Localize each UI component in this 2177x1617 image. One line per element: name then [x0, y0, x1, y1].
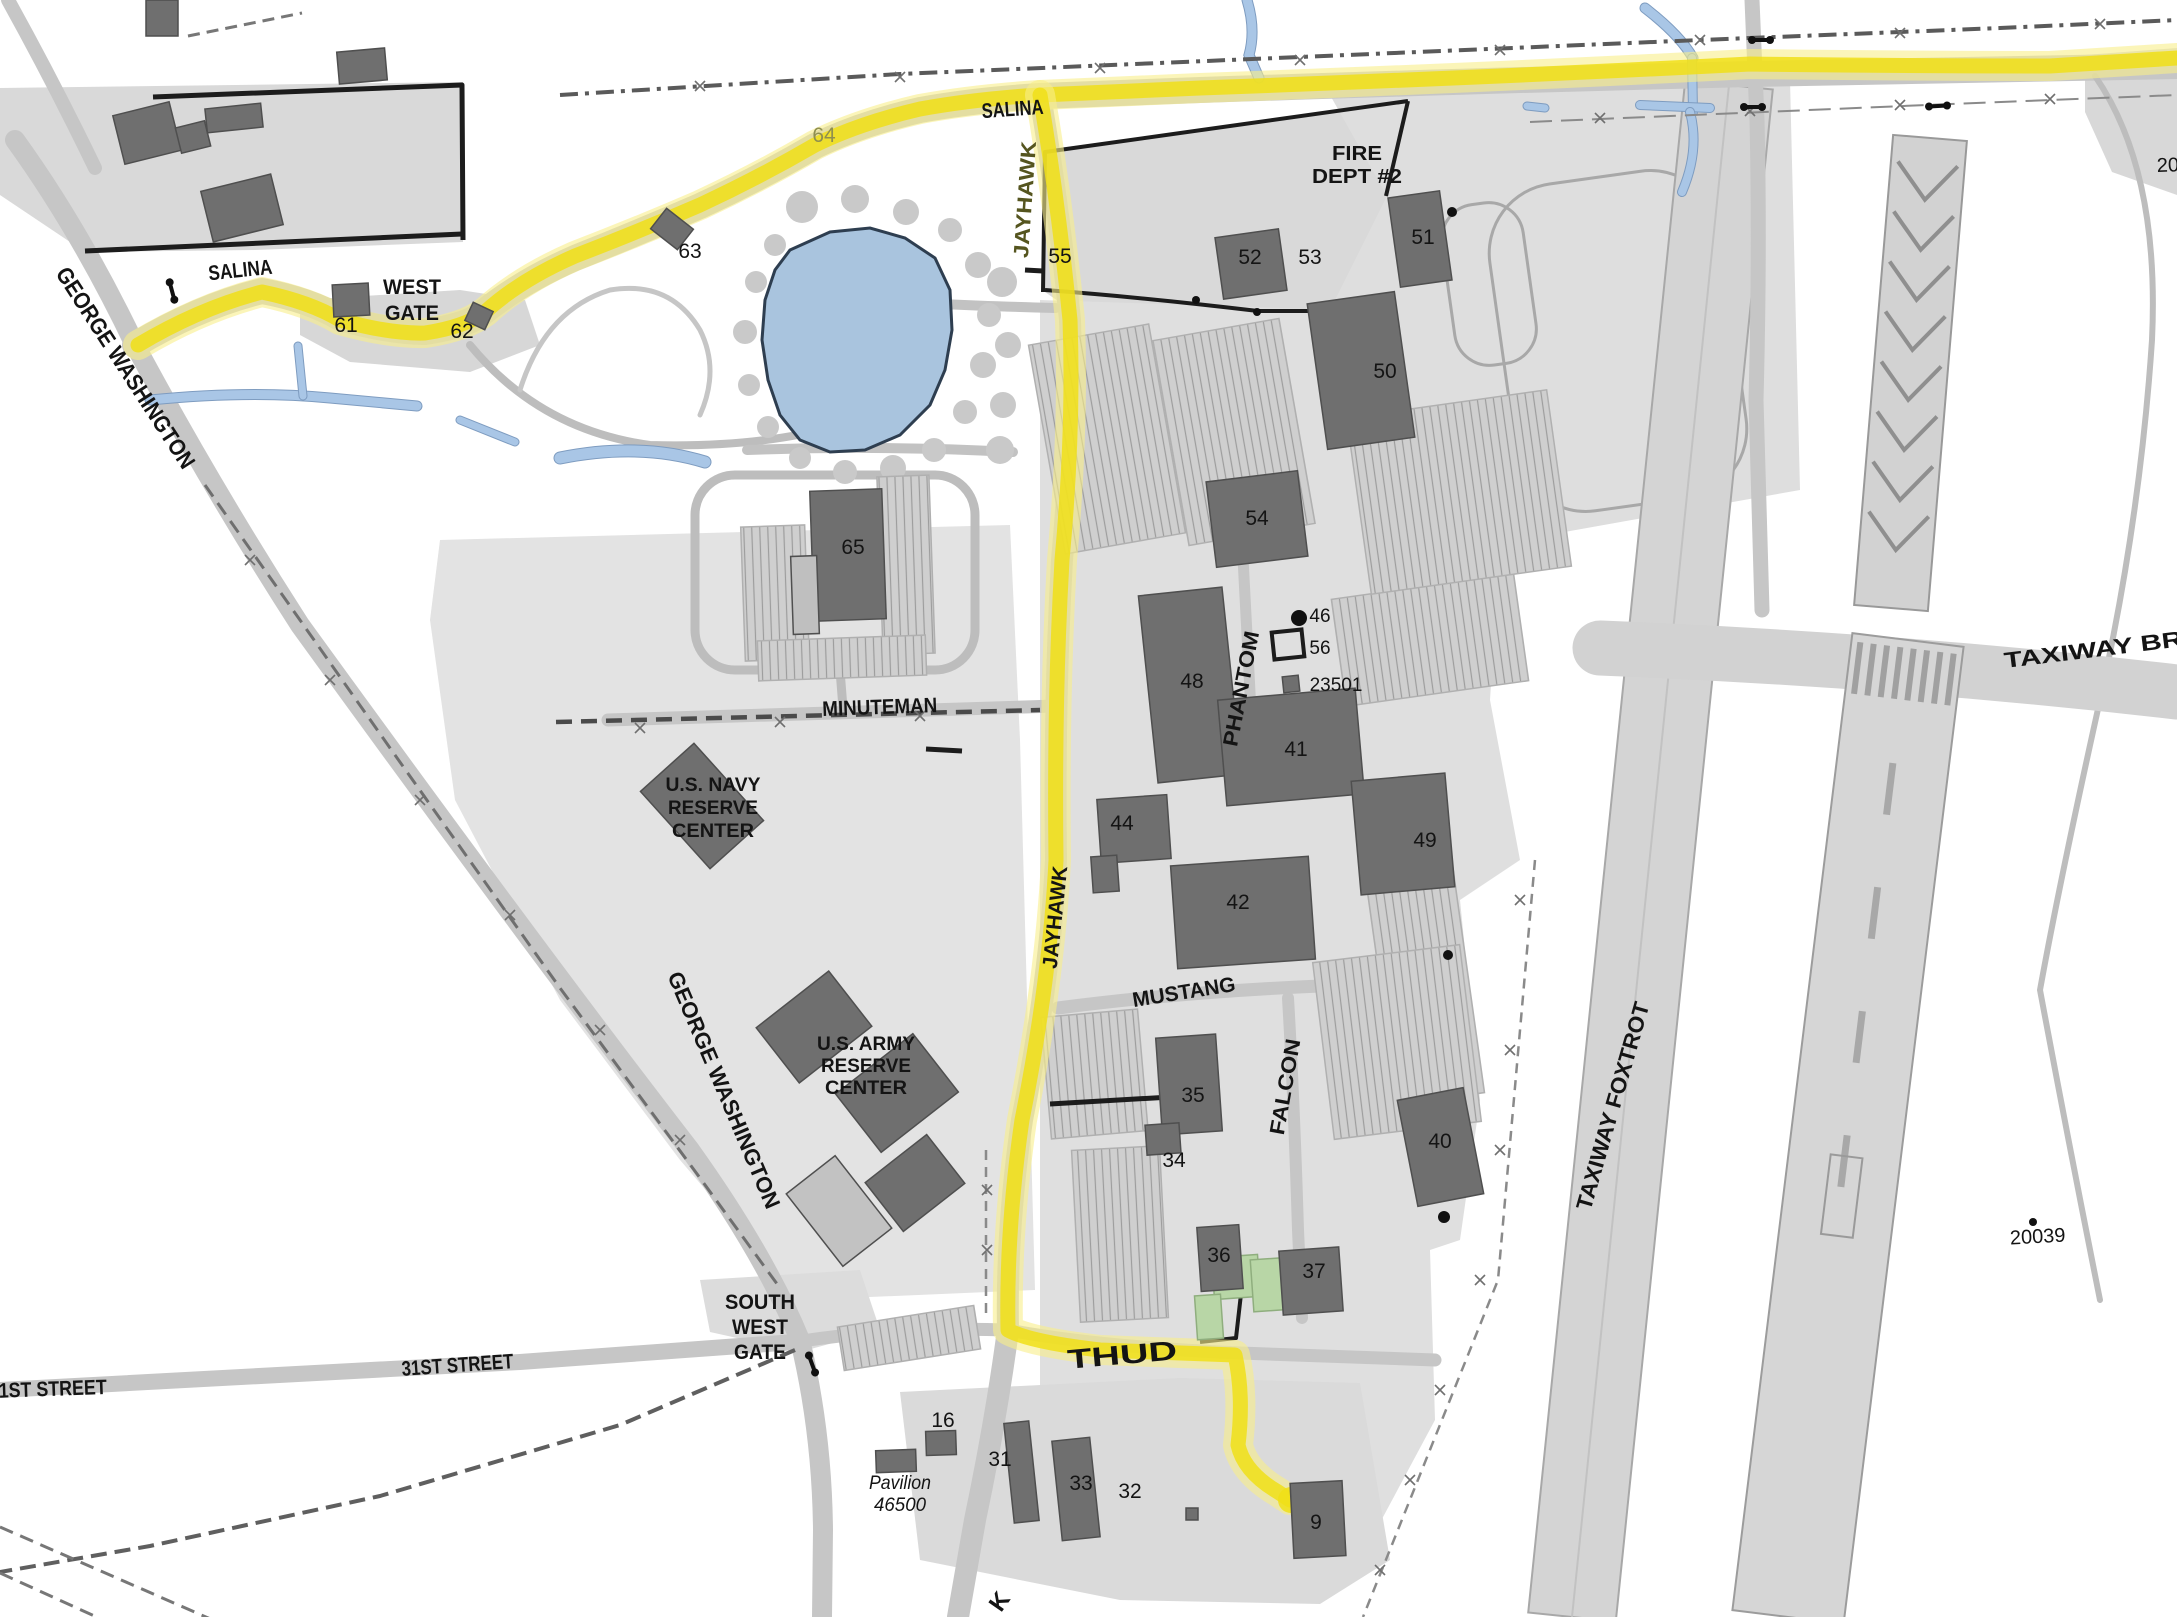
- bldg-55-label: 55: [1048, 245, 1071, 268]
- fire-dept-label-2: DEPT #2: [1312, 166, 1402, 188]
- bldg-pavilion: [876, 1449, 917, 1472]
- point-marker: [1447, 207, 1457, 217]
- point-marker: [1291, 610, 1307, 626]
- bldg-63-label: 63: [678, 240, 701, 263]
- bldg-44: [1097, 795, 1171, 864]
- point-marker: [1192, 296, 1200, 304]
- south-west-gate-label-3: GATE: [734, 1341, 786, 1364]
- west-gate-label-2: GATE: [385, 302, 439, 325]
- point-marker: [1443, 950, 1453, 960]
- pavilion-label-1: Pavilion: [869, 1473, 931, 1494]
- bldg-32-marker: [1186, 1508, 1198, 1520]
- fire-dept-label-1: FIRE: [1332, 143, 1382, 165]
- bldg-62-label: 62: [450, 320, 473, 343]
- bldg-56-label: 56: [1309, 638, 1330, 659]
- tree-blob: [757, 416, 779, 438]
- bldg-54-label: 54: [1245, 507, 1269, 530]
- bldg-36-label: 36: [1207, 1244, 1230, 1267]
- bldg-ind-3: [205, 103, 263, 133]
- bldg-61-label: 61: [334, 314, 357, 337]
- pavilion-label-2: 46500: [874, 1495, 926, 1516]
- minuteman-label: MINUTEMAN: [822, 694, 938, 721]
- bldg-ind-6: [337, 48, 388, 84]
- bldg-40-label: 40: [1428, 1130, 1451, 1153]
- tree-blob: [953, 400, 977, 424]
- minuteman-border-stub: [926, 749, 962, 751]
- army-label-2: RESERVE: [821, 1056, 911, 1077]
- parking-lot: [877, 475, 935, 655]
- point-marker: [1438, 1211, 1450, 1223]
- bldg-52-label: 52: [1238, 246, 1261, 269]
- bldg-33-label: 33: [1069, 1472, 1092, 1495]
- bldg-9-label: 9: [1310, 1511, 1322, 1534]
- parking-lot: [757, 635, 926, 681]
- bldg-65-label: 65: [841, 536, 864, 559]
- tree-blob: [990, 392, 1016, 418]
- tree-blob: [938, 218, 962, 242]
- bldg-51-label: 51: [1411, 226, 1434, 249]
- north-gate-road: [1752, 0, 1762, 610]
- west-stream-branch: [298, 346, 303, 396]
- point-marker: [1253, 308, 1261, 316]
- tree-blob: [733, 320, 757, 344]
- navy-label-3: CENTER: [672, 821, 754, 842]
- tree-blob: [986, 436, 1014, 464]
- bldg-53-label: 53: [1298, 246, 1321, 269]
- bldg-23501-label: 23501: [1310, 675, 1363, 696]
- bldg-16-label: 16: [931, 1409, 954, 1432]
- tree-blob: [833, 460, 857, 484]
- bldg-65-annex: [791, 556, 820, 635]
- tree-blob: [987, 267, 1017, 297]
- tree-blob: [841, 185, 869, 213]
- tree-blob: [893, 199, 919, 225]
- bldg-32-label: 32: [1118, 1480, 1141, 1503]
- south-west-gate-label-1: SOUTH: [725, 1291, 795, 1314]
- north-creek-c: [1640, 105, 1710, 108]
- bldg-23501-shed: [1282, 675, 1300, 693]
- tree-blob: [764, 234, 786, 256]
- bldg-61: [332, 283, 370, 317]
- tree-blob: [995, 332, 1021, 358]
- bldg-35-label: 35: [1181, 1084, 1204, 1107]
- parking-lot: [1072, 1146, 1169, 1322]
- route-64-label: 64: [812, 124, 836, 147]
- south-west-gate-label-2: WEST: [732, 1316, 788, 1339]
- bldg-44-annex: [1091, 855, 1119, 893]
- base-map-canvas: GEORGE WASHINGTONSALINAWESTGATE61626364S…: [0, 0, 2177, 1617]
- bldg-41-label: 41: [1284, 738, 1307, 761]
- number-20-partial-label: 20: [2156, 154, 2177, 177]
- bldg-42-label: 42: [1226, 891, 1249, 914]
- tree-blob: [738, 374, 760, 396]
- navy-label-1: U.S. NAVY: [666, 775, 761, 796]
- bldg-44-label: 44: [1110, 812, 1134, 835]
- tree-blob: [786, 191, 818, 223]
- point-marker: [2029, 1218, 2037, 1226]
- bldg-ind-4: [146, 0, 178, 36]
- bldg-49-label: 49: [1413, 829, 1436, 852]
- bldg-49: [1351, 773, 1455, 895]
- tree-blob: [789, 447, 811, 469]
- 31st-street-label-west: 31ST STREET: [0, 1376, 107, 1403]
- tree-blob: [977, 303, 1001, 327]
- army-label-1: U.S. ARMY: [817, 1034, 915, 1055]
- bldg-37-label: 37: [1302, 1260, 1325, 1283]
- bldg-31-label: 31: [988, 1448, 1011, 1471]
- loop65-jayhawk-connector: [747, 448, 1013, 452]
- north-creek-e: [1527, 106, 1545, 108]
- army-label-3: CENTER: [825, 1078, 907, 1099]
- jayhawk-gate-tick: [1025, 270, 1043, 271]
- bldg-48-label: 48: [1180, 670, 1203, 693]
- bldg-34-label: 34: [1162, 1149, 1186, 1172]
- number-20039-label: 20039: [2009, 1225, 2066, 1250]
- bldg-16: [926, 1430, 957, 1455]
- salina-label-east: SALINA: [981, 96, 1044, 123]
- tree-blob: [965, 252, 991, 278]
- west-gate-label-1: WEST: [383, 276, 441, 299]
- bldg-50-label: 50: [1373, 360, 1396, 383]
- parking-lot: [1041, 1009, 1148, 1139]
- tree-blob: [745, 271, 767, 293]
- base-map: GEORGE WASHINGTONSALINAWESTGATE61626364S…: [0, 0, 2177, 1617]
- tree-blob: [922, 438, 946, 462]
- green-area: [1194, 1294, 1223, 1340]
- bldg-46-label: 46: [1309, 606, 1330, 627]
- tree-blob: [970, 352, 996, 378]
- navy-label-2: RESERVE: [668, 798, 758, 819]
